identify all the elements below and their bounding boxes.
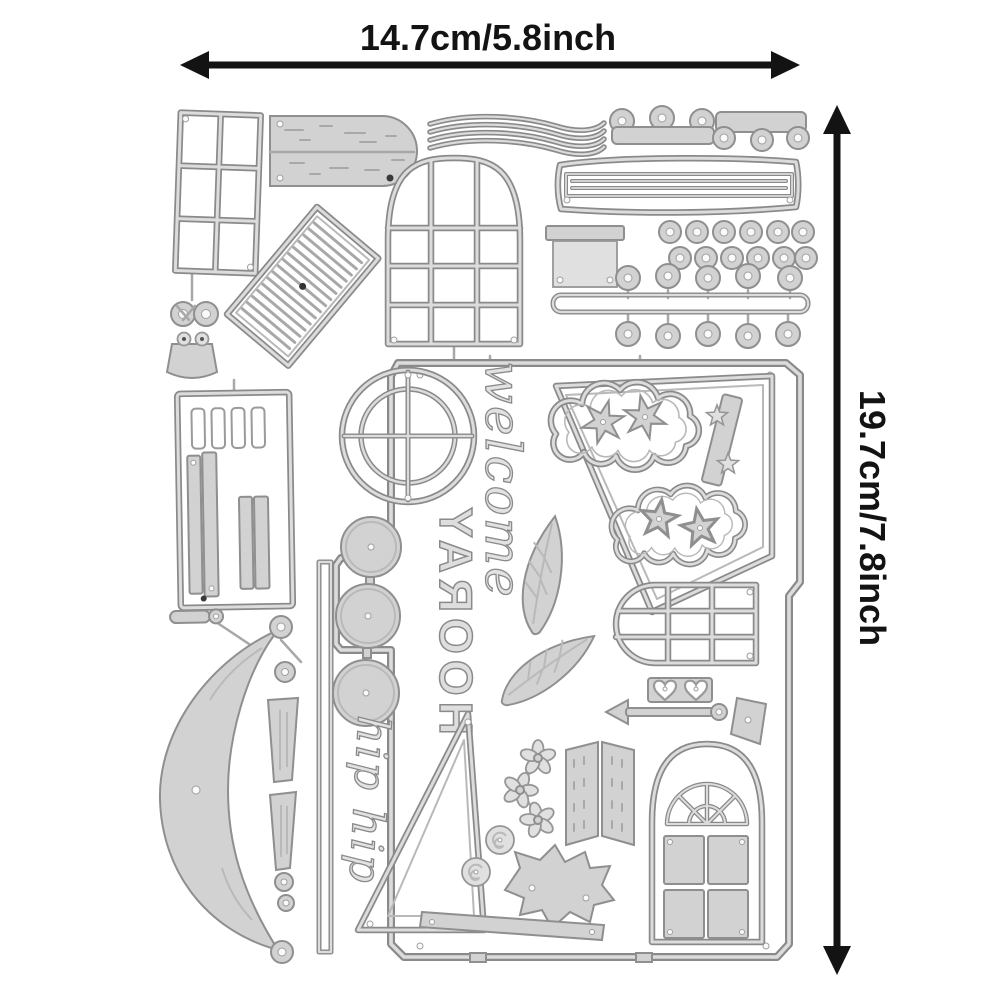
width-annotation: 14.7cm/5.8inch [180,17,800,79]
height-arrow [823,105,851,975]
bow-charm-die [167,302,218,378]
left-rail-die [319,562,331,952]
arched-grid-window-die [388,158,520,344]
hip-hip-script-text: hip hip [339,714,399,886]
wood-plank-sign-die [270,116,417,186]
awning-crescent-die [160,616,293,963]
wavy-ribbon-die [430,117,604,155]
stitched-shutter-pair-die [566,742,634,845]
product-photo: 14.7cm/5.8inch 19.7cm/7.8inch [0,0,1000,1000]
height-annotation: 19.7cm/7.8inch [823,105,893,975]
porthole-window-die [342,370,474,502]
die-sheet: welcome [160,106,817,963]
berry-dot-rows-die [659,221,817,269]
fern-leaf-small-die [489,627,607,709]
arrow-rod-die [606,700,727,724]
slotted-plank-panel-die [166,392,293,624]
arched-panel-door-die [652,744,762,942]
hip-hip-script-die: hip hip [339,714,399,886]
louvered-shutter-die [227,207,378,366]
hooray-word-text: HOORAY [430,501,482,735]
holly-leaf-cluster-die [505,845,614,928]
tassel-drops-die [268,662,298,911]
hand-trowel-die [731,698,766,744]
scalloped-trim-knobs-up-die [610,106,714,144]
star-strip-die [701,394,742,486]
chimney-box-die [546,226,624,287]
scalloped-trim-knobs-down-die [713,112,809,151]
hooray-word-die: HOORAY [430,501,482,735]
six-pane-window-die [175,113,260,274]
berry-row-top [659,221,814,243]
height-label: 19.7cm/7.8inch [852,390,893,646]
lined-banner-die [558,158,798,212]
heart-buttons-die [648,678,712,702]
width-label: 14.7cm/5.8inch [360,17,616,58]
stepping-circles-die [333,517,401,726]
